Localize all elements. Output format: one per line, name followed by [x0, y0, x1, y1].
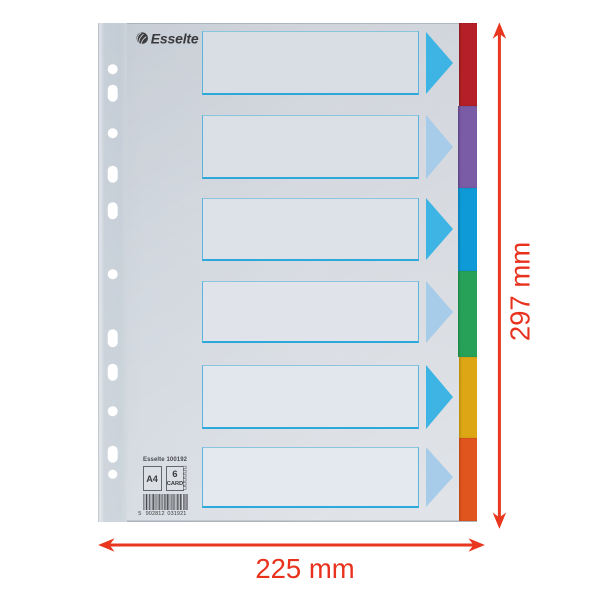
svg-text:297 mm: 297 mm [505, 242, 536, 341]
svg-text:225 mm: 225 mm [255, 553, 354, 584]
